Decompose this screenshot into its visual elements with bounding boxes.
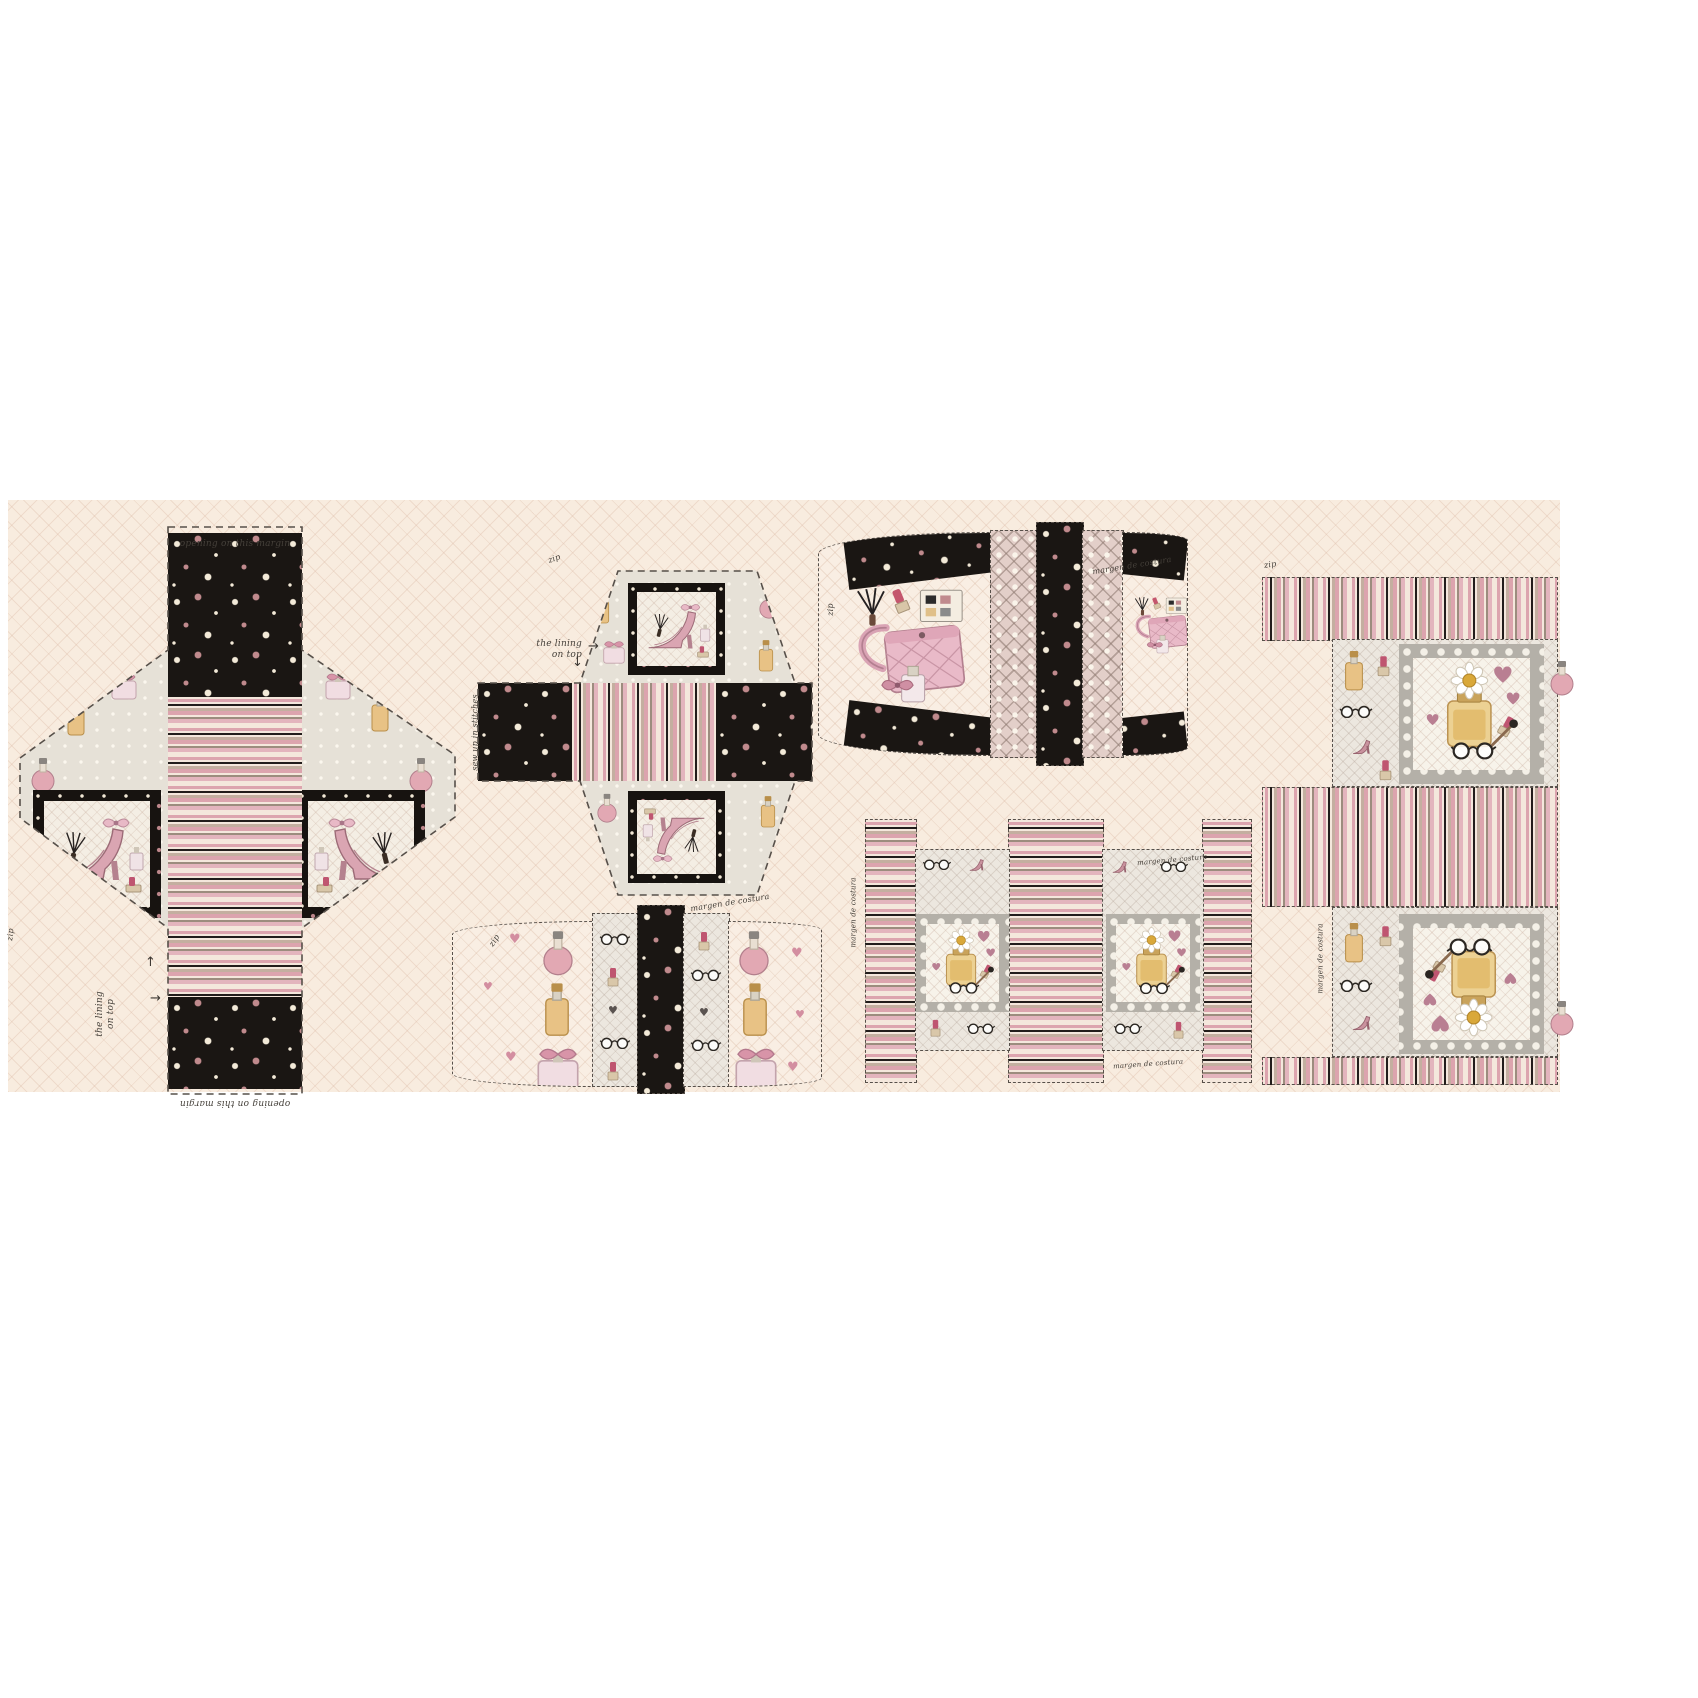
polka-dot-patch <box>842 700 992 756</box>
heart-icon: ♥ <box>505 1050 517 1065</box>
heart-icon: ♥ <box>795 1008 805 1021</box>
mini-heel-icon <box>968 856 986 874</box>
template-cover: zip margen de costura <box>1258 565 1558 1087</box>
perfume-daisy-icon <box>1415 930 1528 1038</box>
framed-shoe-block <box>33 790 161 918</box>
lining-note-line1: the lining <box>95 991 105 1037</box>
bow-icon <box>426 837 448 849</box>
heart-icon: ♥ <box>787 1060 799 1075</box>
striped-band-top <box>1262 577 1558 641</box>
striped-center-band <box>572 683 716 781</box>
handbag-icon <box>837 585 983 705</box>
striped-column <box>865 819 917 1083</box>
glasses-icon <box>1339 978 1373 992</box>
heart-icon: ♥ <box>483 980 493 993</box>
zip-mark: zip <box>546 551 562 566</box>
striped-column <box>1202 819 1252 1083</box>
wing-panel-top <box>580 563 795 685</box>
arrow-down-icon: ↓ <box>572 657 583 669</box>
wing-panel-bottom <box>580 781 795 900</box>
accessory-panel <box>1102 849 1204 1051</box>
perfume-bottle-icon <box>1549 660 1575 696</box>
glasses-icon <box>599 932 631 945</box>
perfume-daisy-icon <box>926 924 999 1002</box>
glasses-icon <box>690 968 722 981</box>
lipstick-icon <box>1379 924 1392 948</box>
glasses-icon <box>922 858 952 870</box>
lipstick-icon <box>607 1060 619 1082</box>
template-bow-pouch: ♥ ♥ ♥ ♥ ♥ ♥ ♥ ♥ margen <box>452 905 822 1092</box>
opening-note: opening on this margin <box>140 539 330 550</box>
framed-perfume-block <box>916 914 1009 1012</box>
perfume-bottle-icon <box>602 639 626 665</box>
perfume-bottle-icon <box>1549 1000 1575 1036</box>
polka-dot-patch <box>1122 712 1188 756</box>
bow-icon <box>28 841 50 853</box>
framed-perfume-block <box>1399 644 1544 784</box>
perfume-daisy-icon <box>1116 924 1190 1002</box>
polka-dot-center-band <box>1036 522 1084 766</box>
perfume-daisy-icon <box>1415 660 1528 768</box>
glasses-icon <box>966 1022 996 1034</box>
mini-heel-icon <box>1351 1012 1373 1034</box>
perfume-bottle-icon <box>596 793 618 823</box>
perfume-bottle-icon <box>1341 650 1367 692</box>
template-box-wrap-left: opening on this margin opening on this m… <box>12 505 467 1105</box>
trellis-strip <box>990 530 1038 758</box>
framed-shoe-block <box>297 790 425 918</box>
perfume-bottle-icon <box>733 1044 779 1087</box>
polka-dot-patch <box>842 532 992 590</box>
handbag-icon <box>1125 595 1188 655</box>
accessory-strip: ♥ <box>592 913 639 1087</box>
seam-allowance-note: margen de costura <box>1316 904 1327 1014</box>
template-box-wrap-middle: the lining on top → ↓ zip sew up in stit… <box>452 505 832 900</box>
pouch-lobe-right: ♥ ♥ ♥ <box>728 921 822 1087</box>
arrow-right-icon: → <box>588 641 599 653</box>
mini-heel-icon <box>1111 858 1129 876</box>
polka-dot-center-band <box>637 905 685 1094</box>
pouch-lobe-left: ♥ ♥ ♥ <box>452 921 594 1087</box>
arrow-right-icon: → <box>150 993 161 1005</box>
stitch-note: sew up in stitches <box>470 678 481 788</box>
heart-icon: ♥ <box>509 932 521 947</box>
lining-note: the lining on top <box>95 968 117 1060</box>
heart-icon: ♥ <box>608 1004 618 1017</box>
perfume-bottle-icon <box>324 671 352 701</box>
bag-lobe-left <box>818 532 992 756</box>
polka-dot-flap-right <box>716 683 812 781</box>
framed-perfume-block <box>1399 914 1544 1054</box>
lining-note-line2: on top <box>106 999 116 1029</box>
perfume-bottle-icon <box>110 671 138 701</box>
perfume-bottle-icon <box>735 982 775 1038</box>
perfume-bottle-icon <box>733 930 775 976</box>
high-heel-icon <box>312 803 412 903</box>
high-heel-icon <box>638 593 714 665</box>
lipstick-icon <box>698 930 710 952</box>
perfume-bottle-icon <box>537 930 579 976</box>
seam-allowance-note: margen de costura <box>1113 1057 1184 1073</box>
perfume-bottle-icon <box>535 1044 581 1087</box>
perfume-bottle-icon <box>1341 922 1367 964</box>
perfume-bottle-icon <box>368 693 392 733</box>
fabric-panel: opening on this margin opening on this m… <box>8 500 1560 1092</box>
framed-perfume-block <box>1106 914 1200 1012</box>
lipstick-icon <box>1173 1020 1184 1040</box>
accessory-panel <box>915 849 1010 1051</box>
glasses-icon <box>1339 704 1373 718</box>
lining-note-line1: the lining <box>536 639 582 649</box>
glasses-icon <box>1113 1022 1143 1034</box>
perfume-bottle-icon <box>758 795 778 829</box>
high-heel-icon <box>46 803 146 903</box>
template-basket: margen de costura margen de costura marg… <box>865 815 1250 1085</box>
striped-center-band <box>168 697 302 997</box>
opening-note-mirrored: opening on this margin <box>140 1097 330 1108</box>
lipstick-icon <box>1379 758 1392 782</box>
striped-band-bottom <box>1262 1057 1558 1085</box>
template-bow-bag: margen de costura zip <box>818 522 1186 762</box>
striped-band-middle <box>1262 787 1558 907</box>
fabric-panel-image: opening on this margin opening on this m… <box>0 0 1698 1698</box>
polka-dot-flap-left <box>478 683 572 781</box>
high-heel-icon <box>639 801 715 873</box>
zip-mark: zip <box>1263 558 1277 571</box>
perfume-bottle-icon <box>537 982 577 1038</box>
lipstick-icon <box>607 966 619 988</box>
perfume-bottle-icon <box>30 757 56 793</box>
perfume-bottle-icon <box>756 639 776 673</box>
polka-dot-flap-bottom <box>168 997 302 1089</box>
heart-icon: ♥ <box>791 946 803 961</box>
lipstick-icon <box>930 1018 941 1038</box>
arrow-up-icon: ↑ <box>145 957 156 969</box>
accessory-section-top <box>1332 639 1558 787</box>
glasses-icon <box>599 1036 631 1049</box>
perfume-bottle-icon <box>592 591 612 625</box>
perfume-bottle-icon <box>64 697 88 737</box>
zip-mark: zip <box>4 928 16 941</box>
perfume-bottle-icon <box>758 589 780 619</box>
zip-mark: zip <box>825 603 836 616</box>
heart-icon: ♥ <box>699 1006 709 1019</box>
perfume-bottle-icon <box>408 757 434 793</box>
mini-heel-icon <box>1351 736 1373 758</box>
accessory-section-bottom <box>1332 907 1558 1057</box>
glasses-icon <box>690 1038 722 1051</box>
seam-allowance-note: margen de costura <box>849 858 860 968</box>
framed-shoe-block <box>628 791 725 883</box>
polka-dot-flap-top <box>168 533 302 697</box>
framed-shoe-block <box>628 583 725 675</box>
striped-column <box>1008 819 1104 1083</box>
accessory-strip: ♥ <box>683 913 730 1087</box>
lipstick-icon <box>1377 654 1390 678</box>
